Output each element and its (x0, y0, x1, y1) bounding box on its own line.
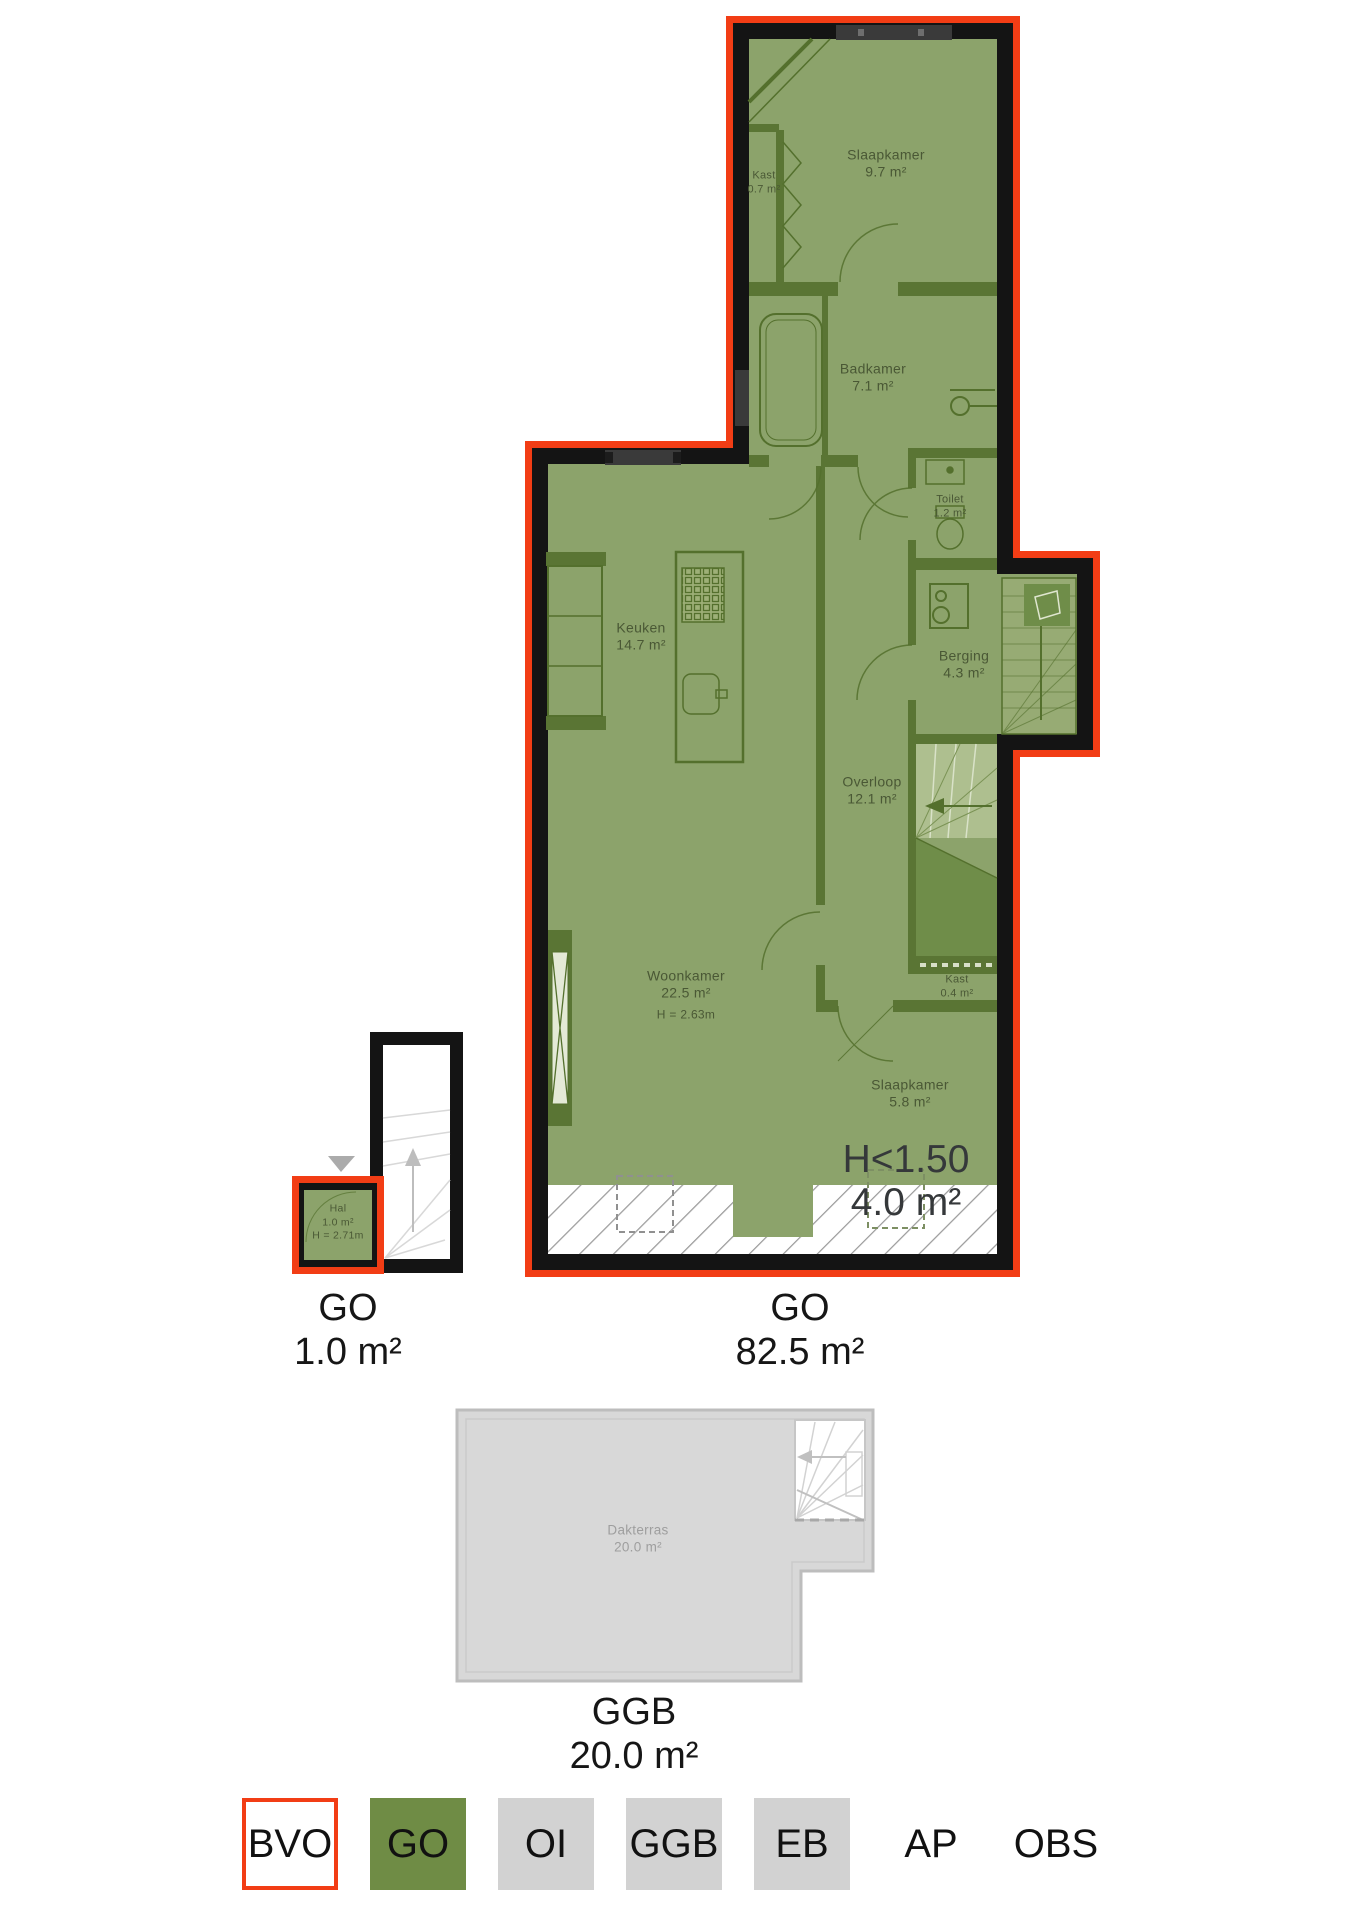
radiator-woonkamer (548, 930, 572, 1126)
low-headroom-annotation: H<1.50 4.0 m² (843, 1138, 970, 1224)
room-label-dakterras: Dakterras 20.0 m² (607, 1522, 668, 1555)
stove-icon (682, 568, 724, 622)
room-label-toilet: Toilet 1.2 m² (934, 493, 967, 520)
legend-item-ggb: GGB (626, 1798, 722, 1890)
unit-label-hal: GO 1.0 m² (294, 1286, 402, 1374)
room-label-hal: Hal 1.0 m² H = 2.71m (312, 1203, 363, 1244)
legend-item-oi: OI (498, 1798, 594, 1890)
room-label-slaapkamer-boven: Slaapkamer 9.7 m² (847, 147, 925, 182)
entrance-marker-triangle (328, 1156, 355, 1172)
room-label-badkamer: Badkamer 7.1 m² (840, 361, 906, 396)
room-label-keuken: Keuken 14.7 m² (616, 620, 666, 655)
floorplan-graphics (0, 0, 1358, 1920)
room-label-woonkamer: Woonkamer 22.5 m² H = 2.63m (647, 968, 725, 1023)
room-label-overloop: Overloop 12.1 m² (842, 774, 901, 809)
floorplan-canvas: Slaapkamer 9.7 m² Kast 0.7 m² Badkamer 7… (0, 0, 1358, 1920)
legend-item-go: GO (370, 1798, 466, 1890)
legend-item-eb: EB (754, 1798, 850, 1890)
terrace-stairs (795, 1420, 865, 1520)
unit-label-main: GO 82.5 m² (736, 1286, 865, 1374)
room-label-berging: Berging 4.3 m² (939, 648, 989, 683)
legend-item-ap: AP (883, 1798, 979, 1890)
room-label-kast-onder: Kast 0.4 m² (941, 973, 974, 1000)
unit-label-terrace: GGB 20.0 m² (570, 1690, 699, 1778)
room-label-slaapkamer-onder: Slaapkamer 5.8 m² (871, 1077, 949, 1112)
stairs-berging (1002, 578, 1076, 734)
legend-item-bvo: BVO (242, 1798, 338, 1890)
legend-item-obs: OBS (1008, 1798, 1104, 1890)
room-label-kast-boven: Kast 0.7 m² (748, 169, 781, 196)
